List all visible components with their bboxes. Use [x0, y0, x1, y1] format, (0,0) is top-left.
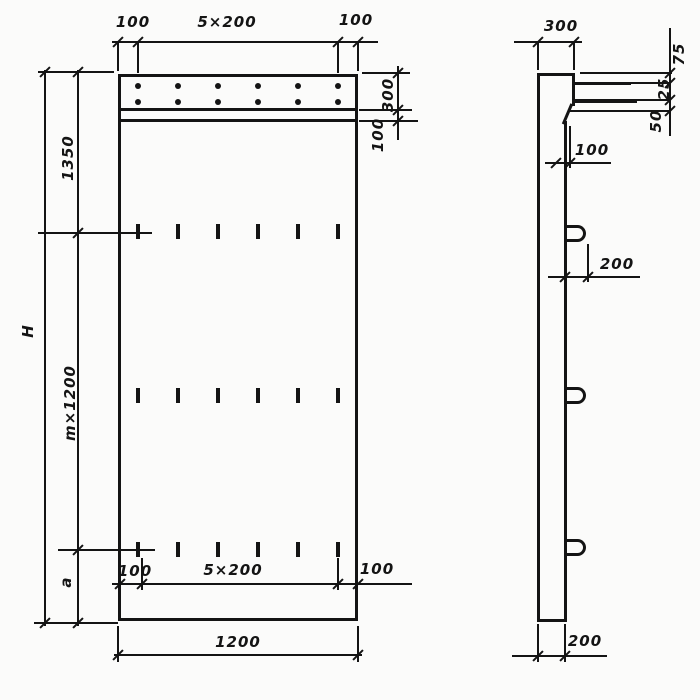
slot-dash	[296, 542, 300, 557]
slot-dash	[136, 542, 140, 557]
slot-dash	[136, 224, 140, 239]
left-dim-label-m1200: m×1200	[61, 348, 79, 458]
inner-dim-label-left: 100	[115, 562, 155, 580]
top-ext-left-edge	[117, 43, 119, 71]
slot-dash	[256, 224, 260, 239]
anchor-dot	[295, 99, 301, 105]
step-dim-label: 100	[572, 141, 612, 159]
side-top-edge	[537, 73, 575, 76]
loop-dim-label: 200	[597, 255, 637, 273]
slot-dash	[216, 388, 220, 403]
top-dim-label-right: 100	[336, 11, 376, 29]
top-dim-label-left: 100	[113, 13, 153, 31]
inner-dim-label-middle: 5×200	[193, 561, 273, 579]
side-bottom-dim-label: 200	[565, 632, 605, 650]
slot-dash	[296, 388, 300, 403]
slot-dash	[216, 542, 220, 557]
side-dim-label-75: 75	[670, 39, 688, 69]
side-dim-label-50: 50	[647, 106, 665, 136]
left-ext-row1	[38, 232, 152, 234]
side-top-ext-right	[573, 43, 575, 70]
slot-dash	[176, 542, 180, 557]
anchor-dot	[295, 83, 301, 89]
side-left-face	[537, 74, 540, 622]
top-ext-col1	[137, 43, 139, 73]
lifting-loop	[565, 387, 586, 404]
left-dim-label-1350: 1350	[59, 128, 77, 188]
band-bottom-line	[118, 108, 358, 111]
anchor-dot	[335, 99, 341, 105]
anchor-dot	[215, 83, 221, 89]
left-dim-label-a: a	[57, 572, 75, 592]
lifting-loop	[565, 225, 586, 242]
panel-outline	[118, 74, 358, 621]
anchor-dot	[255, 99, 261, 105]
lifting-loop	[565, 539, 586, 556]
joint-strip-upper	[575, 82, 631, 85]
anchor-dot	[255, 83, 261, 89]
inner-dim-label-right: 100	[357, 560, 397, 578]
slot-dash	[256, 388, 260, 403]
inner-dim-line	[112, 583, 412, 585]
top-dim-label-middle: 5×200	[187, 13, 267, 31]
slot-dash	[216, 224, 220, 239]
side-bottom-dim-line	[512, 655, 607, 657]
anchor-dot	[135, 99, 141, 105]
top-ext-right-edge	[357, 43, 359, 71]
right-ext-strip	[359, 120, 418, 122]
side-bottom-edge	[537, 619, 567, 622]
slot-dash	[296, 224, 300, 239]
slot-dash	[336, 224, 340, 239]
anchor-dot	[175, 83, 181, 89]
joint-strip-lower	[575, 99, 637, 103]
slot-dash	[336, 542, 340, 557]
slot-dash	[336, 388, 340, 403]
anchor-dot	[335, 83, 341, 89]
strip-bottom-line	[118, 119, 358, 122]
slot-dash	[136, 388, 140, 403]
left-dim-label-H: H	[19, 321, 37, 341]
engineering-drawing: 100 5×200 100 300 100 1350 m×1200 a H 10…	[0, 0, 700, 700]
left-dim-line-overall	[44, 70, 46, 626]
slot-dash	[256, 542, 260, 557]
left-ext-row3	[58, 549, 155, 551]
side-top-dim-label: 300	[531, 17, 591, 35]
anchor-dot	[215, 99, 221, 105]
anchor-dot	[175, 99, 181, 105]
anchor-dot	[135, 83, 141, 89]
slot-dash	[176, 224, 180, 239]
side-top-ext-left	[537, 43, 539, 70]
right-dim-label-strip: 100	[369, 115, 387, 155]
bottom-dim-label: 1200	[198, 633, 278, 651]
right-dim-line	[397, 66, 399, 140]
slot-dash	[176, 388, 180, 403]
bottom-dim-line	[114, 654, 362, 656]
top-ext-col6	[337, 43, 339, 73]
